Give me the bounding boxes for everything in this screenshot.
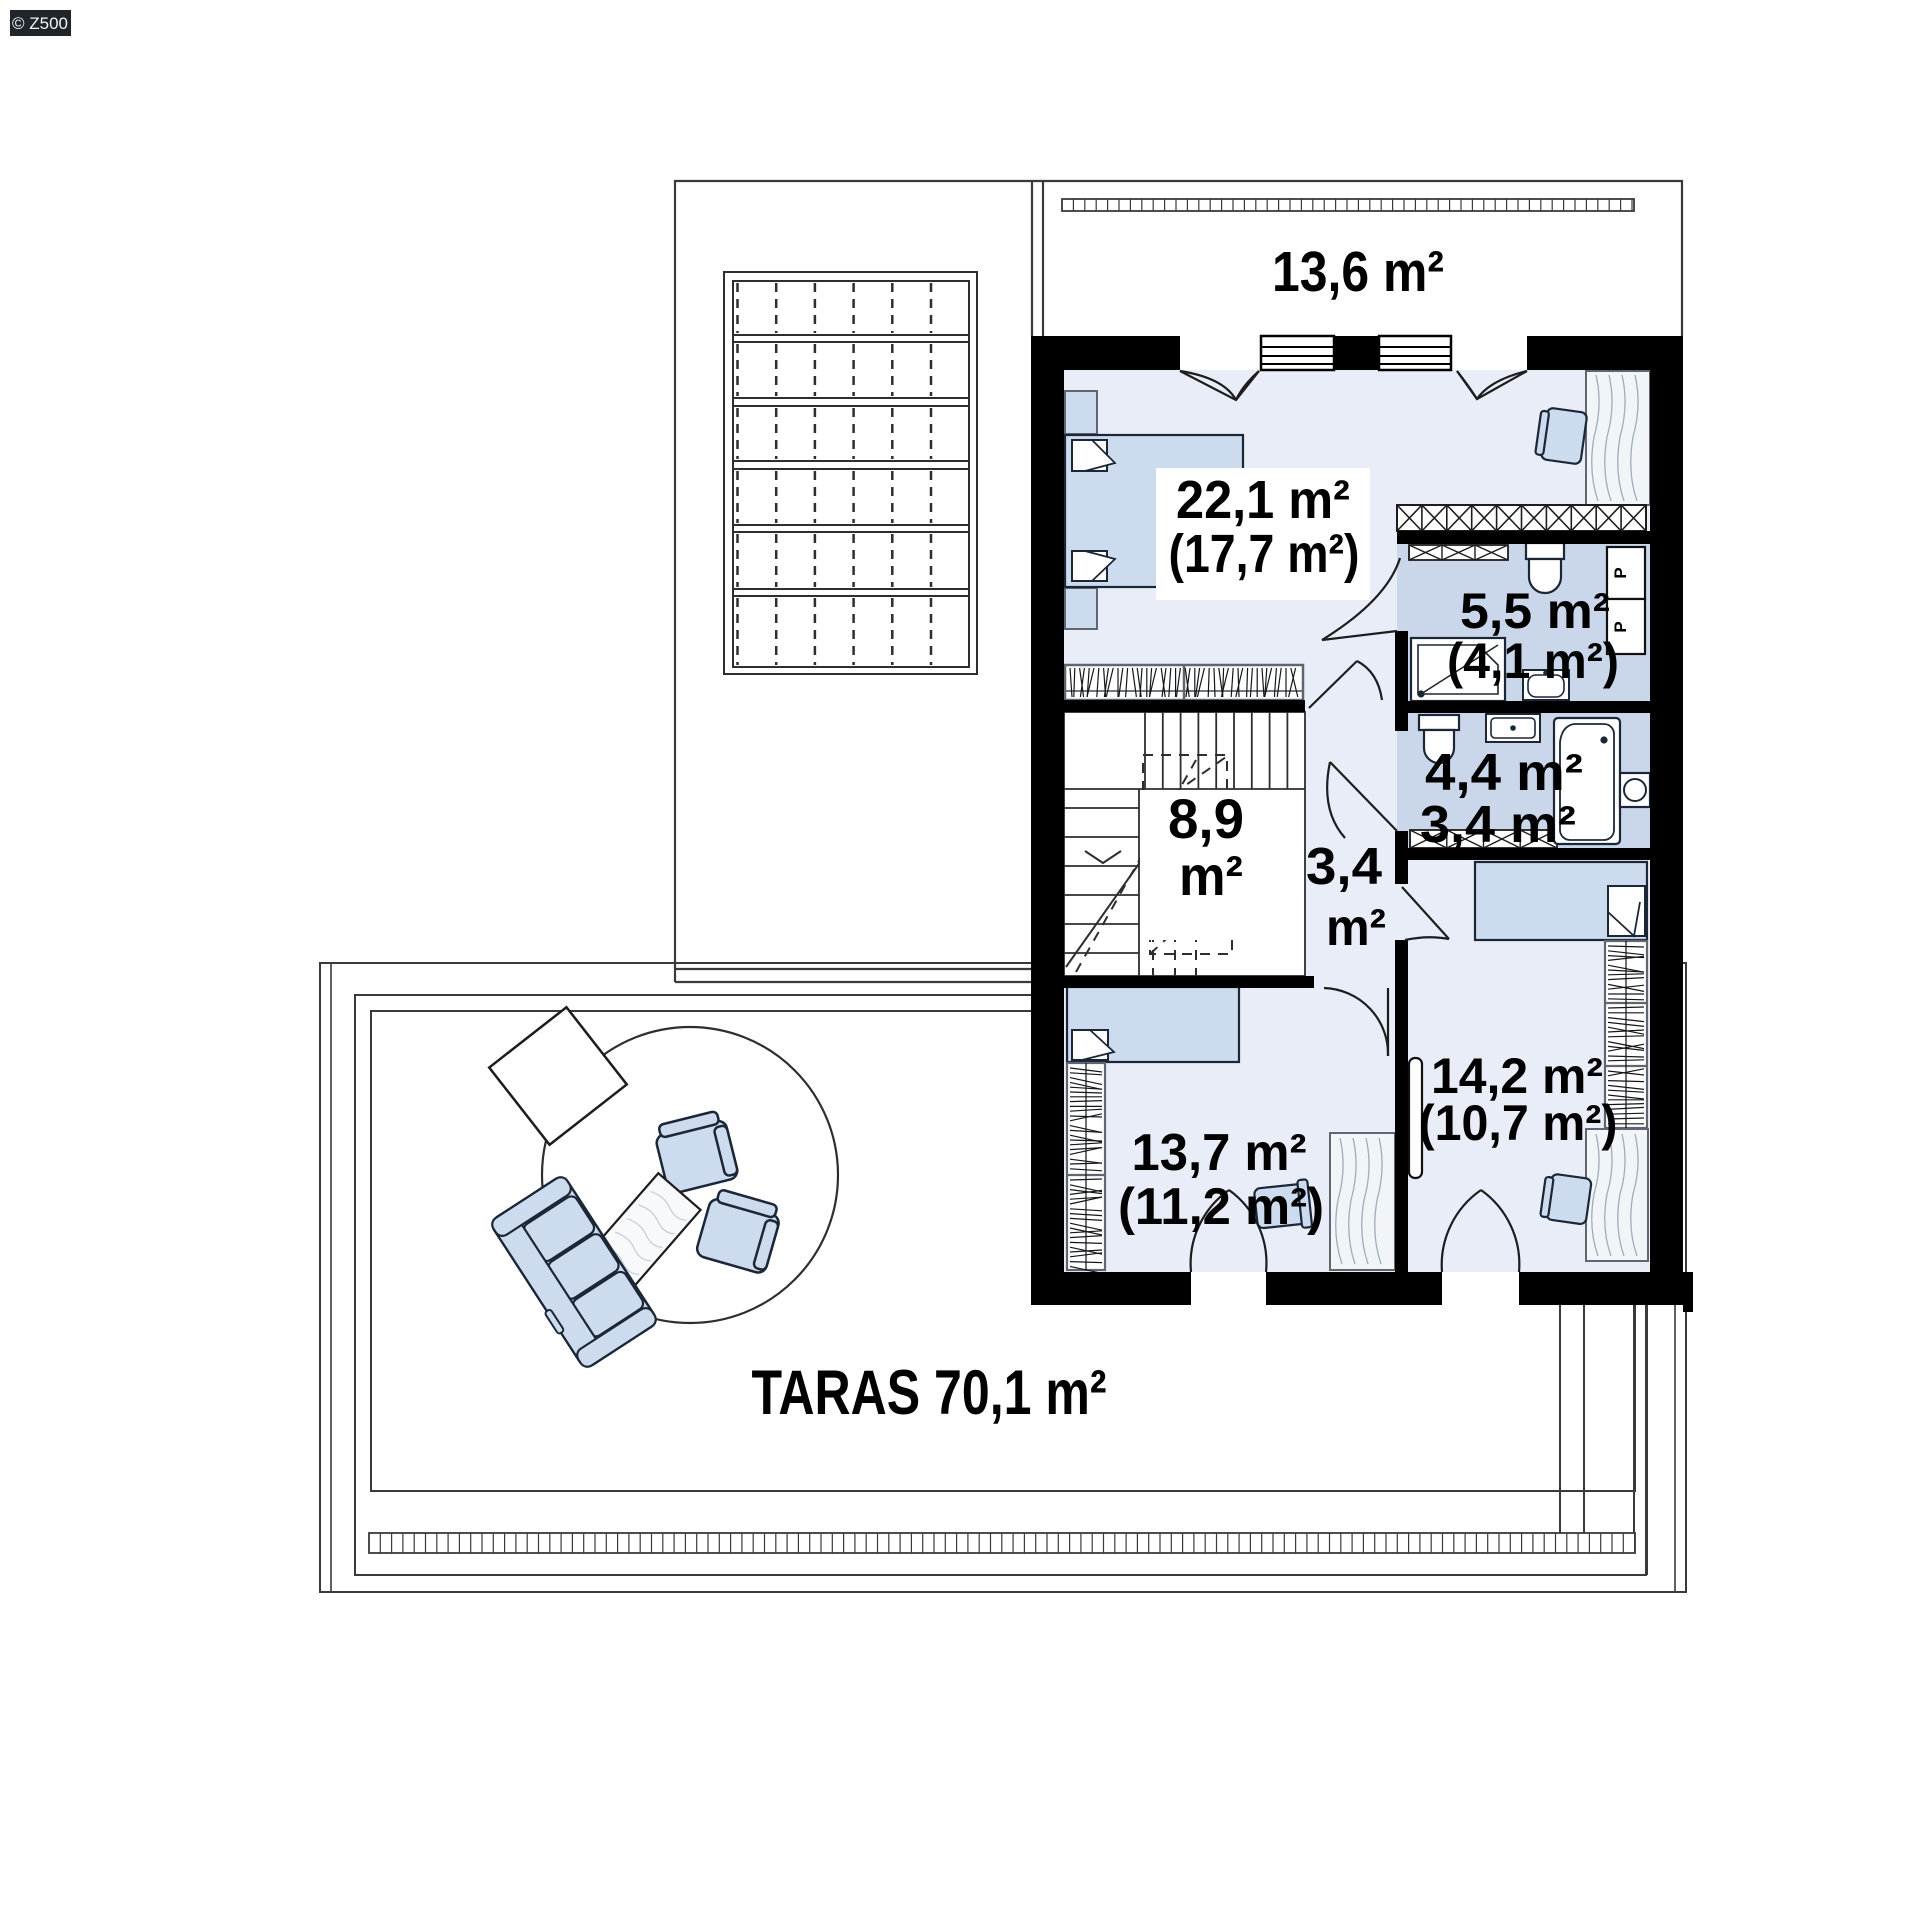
svg-text:3,4 m²: 3,4 m² [1420, 796, 1576, 854]
svg-text:(11,2 m²): (11,2 m²) [1118, 1178, 1324, 1236]
svg-text:(4,1 m²): (4,1 m²) [1447, 633, 1619, 689]
svg-text:m²: m² [1179, 844, 1243, 907]
svg-text:(10,7 m²): (10,7 m²) [1419, 1095, 1618, 1151]
svg-text:m²: m² [1326, 899, 1386, 957]
svg-text:3,4: 3,4 [1306, 838, 1382, 896]
svg-text:© Z500: © Z500 [12, 14, 68, 33]
svg-text:4,4 m²: 4,4 m² [1425, 744, 1583, 802]
svg-text:5,5 m²: 5,5 m² [1460, 583, 1610, 639]
svg-text:13,7 m²: 13,7 m² [1132, 1124, 1307, 1182]
svg-text:13,6 m²: 13,6 m² [1272, 240, 1444, 304]
svg-text:22,1 m²: 22,1 m² [1176, 470, 1350, 530]
svg-text:P: P [1611, 567, 1630, 578]
svg-text:P: P [1611, 621, 1630, 632]
svg-text:(17,7 m²): (17,7 m²) [1169, 524, 1360, 584]
svg-text:TARAS 70,1 m²: TARAS 70,1 m² [752, 1358, 1107, 1428]
svg-text:8,9: 8,9 [1168, 787, 1244, 850]
